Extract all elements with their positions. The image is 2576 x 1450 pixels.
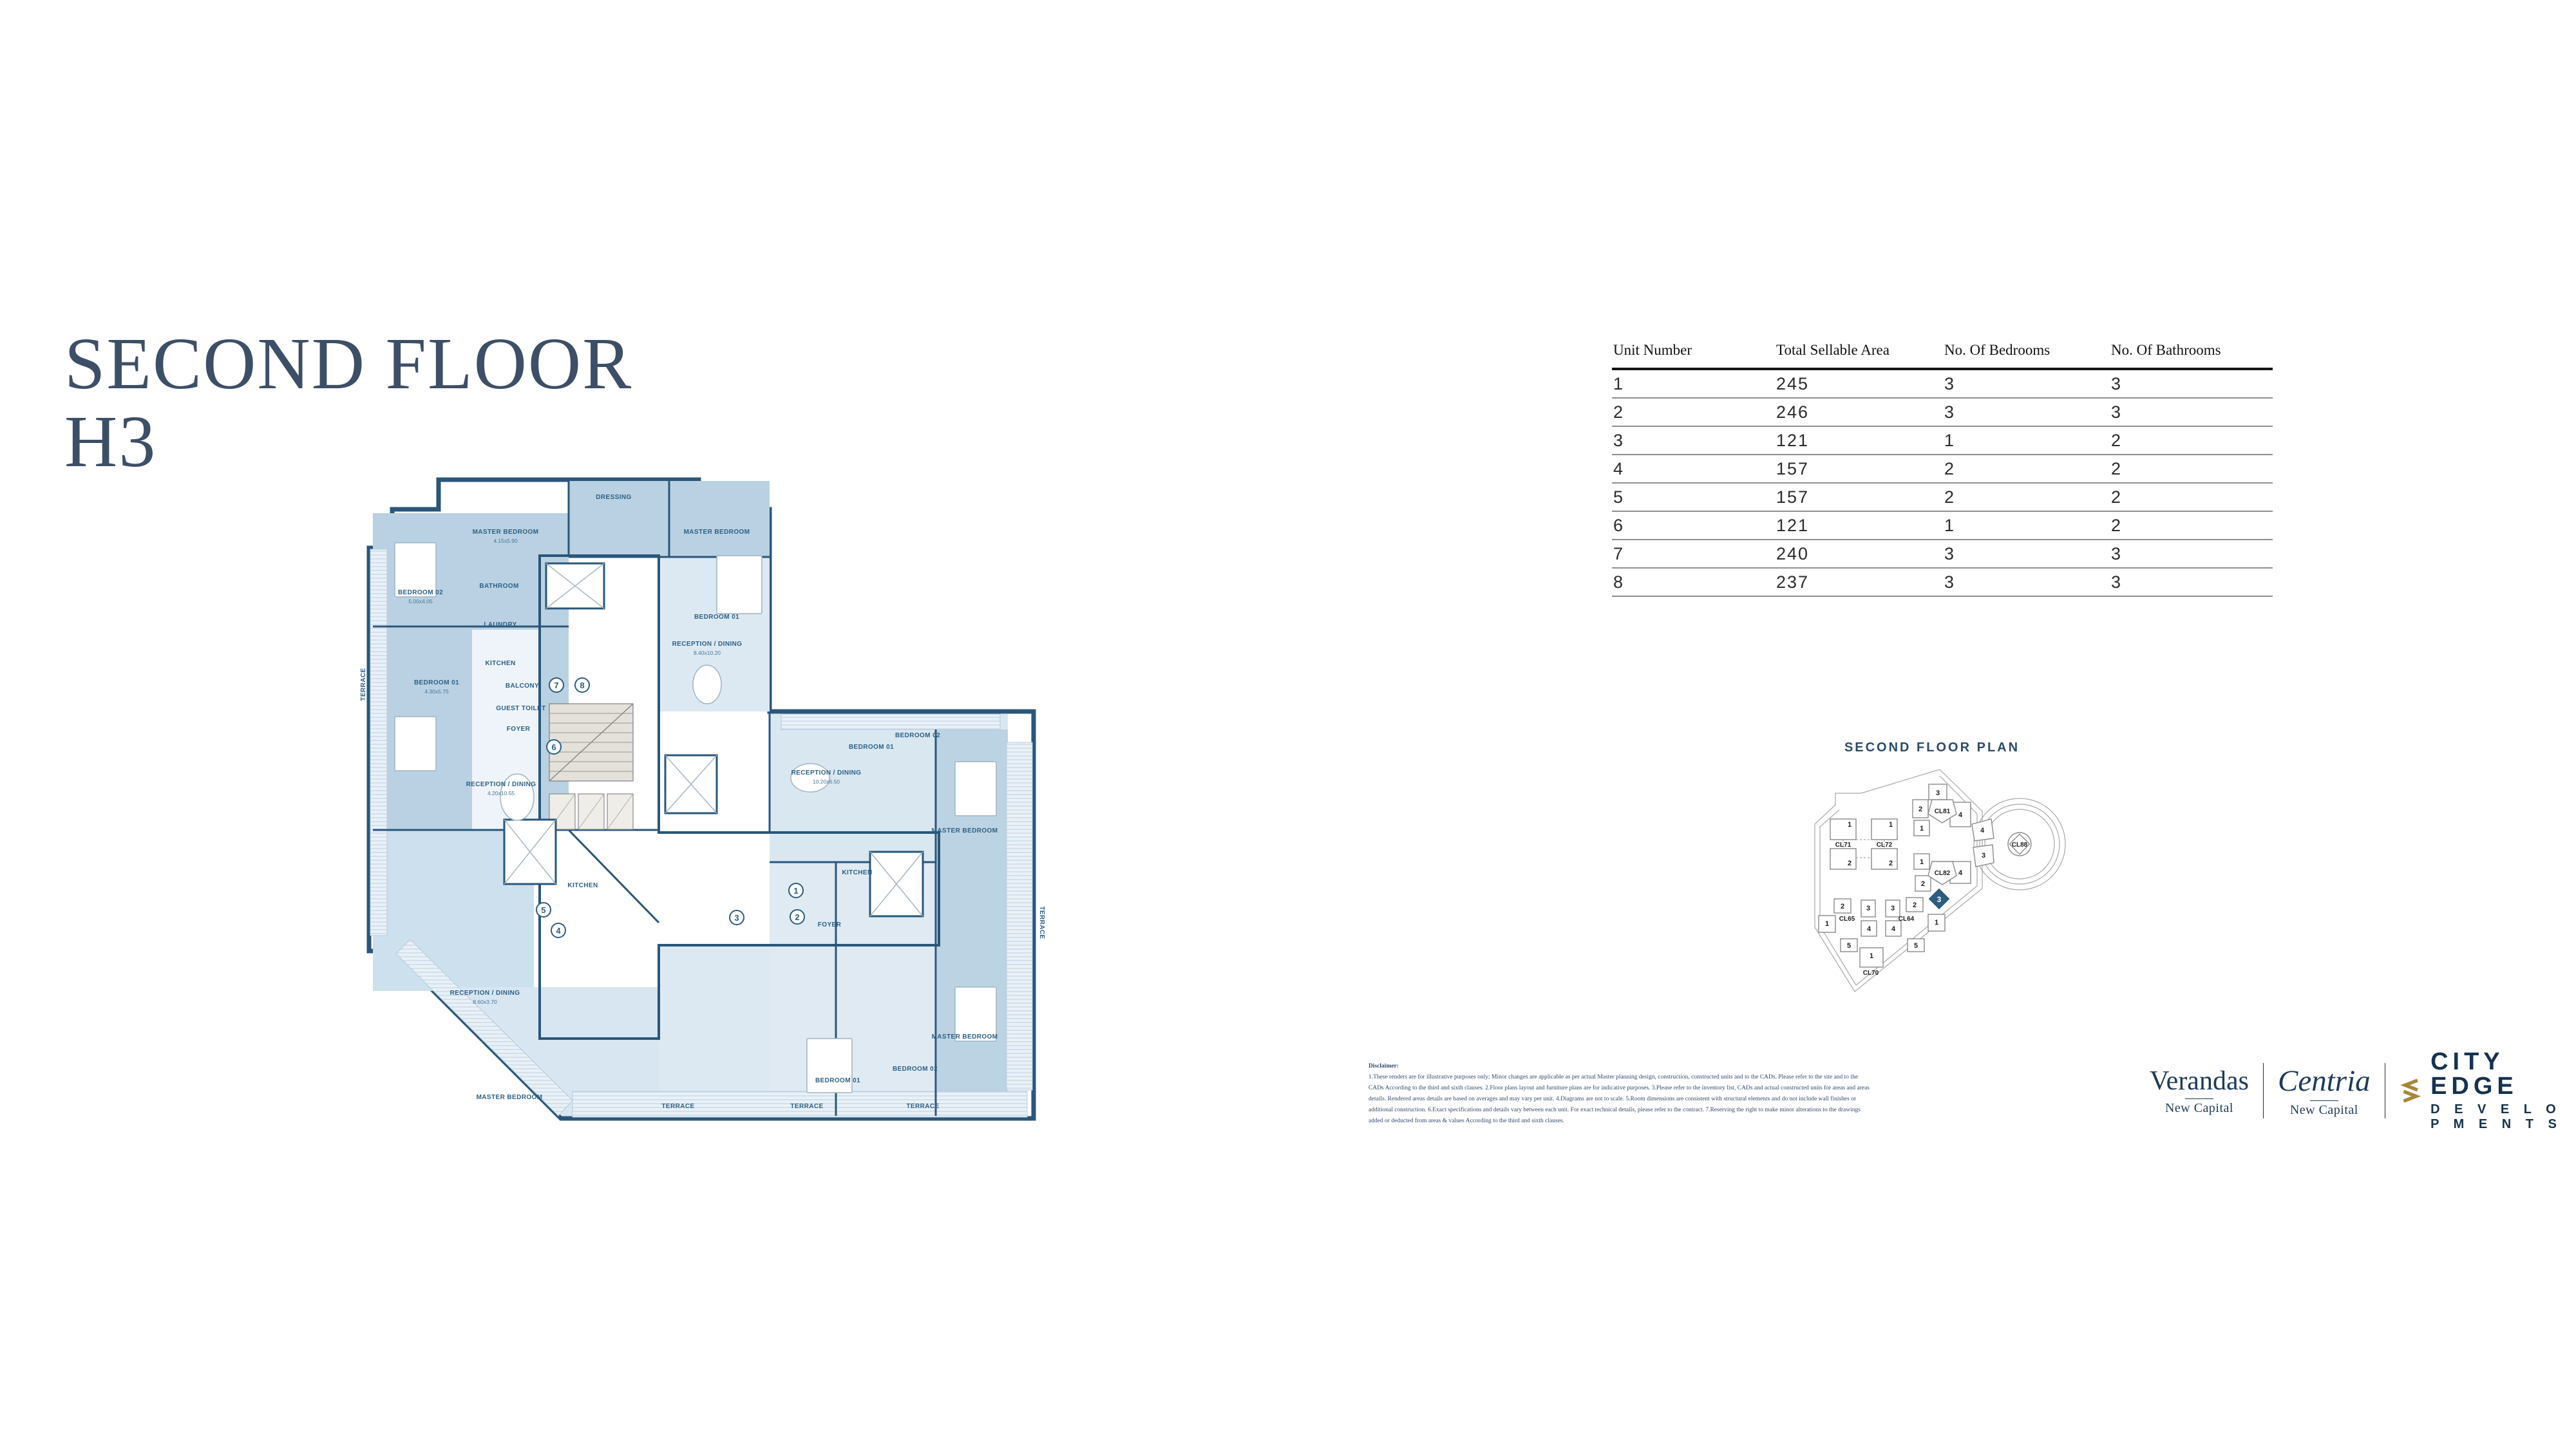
bed xyxy=(955,762,996,816)
unit-marker-label: 2 xyxy=(795,912,799,922)
cell: 1 xyxy=(1612,369,1775,398)
city-edge-ribbon-icon xyxy=(2400,1068,2421,1114)
page-title-line1: SECOND FLOOR xyxy=(64,325,632,403)
cell: 3 xyxy=(2110,540,2273,568)
centria-tagline: New Capital xyxy=(2278,1103,2371,1118)
page-title-line2: H3 xyxy=(64,403,632,481)
room-label: FOYER xyxy=(507,726,531,733)
unit-label: 3 xyxy=(1936,789,1940,797)
unit-marker-7: 7 xyxy=(549,678,563,692)
unit-label: 1 xyxy=(1825,920,1829,928)
room-dim: 4.15x5.90 xyxy=(493,538,518,544)
cell: 3 xyxy=(2110,398,2273,426)
cell: 3 xyxy=(1943,398,2110,426)
cell: 237 xyxy=(1775,568,1943,596)
elevator-icon xyxy=(870,852,923,916)
dining-table xyxy=(791,764,829,792)
room-label: MASTER BEDROOM xyxy=(473,529,539,536)
room-label: GUEST TOILET xyxy=(496,705,545,712)
room-label: BEDROOM 02 xyxy=(895,732,940,739)
unit-marker-5: 5 xyxy=(536,903,551,917)
disclaimer-line: details. Rendered areas details are base… xyxy=(1368,1094,1870,1105)
unit-label: 4 xyxy=(1958,811,1963,819)
cluster-cl70: 1 CL70 xyxy=(1860,948,1883,977)
cell: 3 xyxy=(1612,426,1775,455)
dining-table xyxy=(693,665,721,704)
cell: 3 xyxy=(2110,369,2273,398)
room-label: RECEPTION / DINING xyxy=(791,769,862,777)
cluster-cl81: 3 2 1 4 CL81 xyxy=(1913,784,1971,836)
unit-marker-label: 7 xyxy=(554,681,558,690)
room-label: TERRACE xyxy=(1038,906,1045,939)
room-label: BATHROOM xyxy=(479,583,518,590)
disclaimer-line: CADs According to the third and sixth cl… xyxy=(1368,1083,1870,1094)
bed xyxy=(395,717,436,771)
room-label: KITCHEN xyxy=(567,882,598,889)
unit-label: 4 xyxy=(1958,869,1963,877)
room-dim: 4.20x10.55 xyxy=(488,790,515,796)
table-row: 124533 xyxy=(1612,369,2273,398)
unit-label: 2 xyxy=(1913,901,1917,909)
unit-label: 1 xyxy=(1889,821,1893,829)
room-dim: 4.30x5.75 xyxy=(424,688,449,695)
cluster-cl88: CL88 xyxy=(2008,833,2031,856)
room-dim: 8.60x3.70 xyxy=(473,999,497,1005)
cell: 3 xyxy=(1943,369,2110,398)
cell: 245 xyxy=(1775,369,1943,398)
unit-label: 1 xyxy=(1870,952,1873,960)
unit-table: Unit Number Total Sellable Area No. Of B… xyxy=(1612,342,2273,597)
room-label: FOYER xyxy=(818,921,842,928)
bed xyxy=(807,1039,852,1093)
logo-divider xyxy=(2385,1063,2385,1118)
cluster-label: CL81 xyxy=(1935,808,1951,815)
room-label: BEDROOM 02 xyxy=(893,1066,938,1073)
unit-marker-label: 1 xyxy=(793,886,798,896)
centria-logo: Centria New Capital xyxy=(2278,1064,2371,1118)
unit-label: 2 xyxy=(1889,860,1893,867)
room-label: MASTER BEDROOM xyxy=(477,1094,543,1101)
verandas-tagline: New Capital xyxy=(2150,1101,2249,1116)
page-title: SECOND FLOOR H3 xyxy=(64,325,632,481)
room-dim: 8.40x10.20 xyxy=(694,650,721,656)
room-label: BEDROOM 01 xyxy=(694,614,739,621)
room-label: KITCHEN xyxy=(842,869,872,876)
table-row: 823733 xyxy=(1612,568,2273,596)
table-row: 612112 xyxy=(1612,511,2273,540)
cluster-label: CL82 xyxy=(1935,870,1951,877)
city-edge-logo: CITY EDGE D E V E L O P M E N T S xyxy=(2400,1050,2576,1132)
elevator-icon xyxy=(665,755,717,813)
disclaimer-line: 1.These renders are for illustrative pur… xyxy=(1368,1072,1870,1083)
mini-key-plan: CL88 1 1 2 2 CL71 CL72 3 2 1 4 CL81 1 2 … xyxy=(1810,760,2112,1017)
unit-label: 3 xyxy=(1866,905,1870,912)
col-header-bedrooms: No. Of Bedrooms xyxy=(1943,342,2110,369)
room-label: TERRACE xyxy=(790,1103,823,1110)
unit-marker-2: 2 xyxy=(790,910,804,924)
elevator-bank-icon xyxy=(549,794,633,829)
room-label: TERRACE xyxy=(906,1103,939,1110)
unit-marker-label: 5 xyxy=(541,905,545,915)
room-label: LAUNDRY xyxy=(484,621,516,628)
cell: 2 xyxy=(1612,398,1775,426)
unit-label: 4 xyxy=(1891,925,1896,933)
table-row: 224633 xyxy=(1612,398,2273,426)
cluster-label: CL70 xyxy=(1863,970,1879,977)
unit-marker-4: 4 xyxy=(551,923,565,937)
stairs-icon xyxy=(549,704,633,781)
col-header-unit-number: Unit Number xyxy=(1612,342,1775,369)
cluster-label: CL65 xyxy=(1839,916,1855,923)
brand-logos: Verandas New Capital Centria New Capital… xyxy=(2150,1061,2576,1120)
cell: 246 xyxy=(1775,398,1943,426)
unit-label: 4 xyxy=(1867,925,1871,933)
cell: 3 xyxy=(2110,568,2273,596)
cell: 2 xyxy=(2110,511,2273,540)
unit-label: 1 xyxy=(1848,821,1851,829)
city-edge-text: CITY EDGE D E V E L O P M E N T S xyxy=(2430,1050,2576,1132)
disclaimer-heading: Disclaimer: xyxy=(1368,1061,1870,1072)
table-row: 312112 xyxy=(1612,426,2273,455)
highlighted-unit-label: 3 xyxy=(1937,895,1942,904)
unit-marker-label: 4 xyxy=(556,926,561,936)
unit-marker-label: 6 xyxy=(551,742,556,752)
disclaimer-line: additional construction. 6.Exact specifi… xyxy=(1368,1105,1870,1116)
room-dim: 5.00x4.05 xyxy=(408,598,433,605)
room-label: BEDROOM 01 xyxy=(815,1077,860,1084)
col-header-bathrooms: No. Of Bathrooms xyxy=(2110,342,2273,369)
mini-plan-title: SECOND FLOOR PLAN xyxy=(1810,740,2054,755)
city-edge-name: CITY EDGE xyxy=(2430,1050,2576,1098)
unit-label: 3 xyxy=(1891,905,1895,912)
cell: 5 xyxy=(1612,483,1775,511)
room-label: MASTER BEDROOM xyxy=(932,1033,998,1040)
room-label: TERRACE xyxy=(661,1103,694,1110)
room-label: RECEPTION / DINING xyxy=(672,641,743,648)
room-label: RECEPTION / DINING xyxy=(466,781,536,788)
cluster-label: CL64 xyxy=(1899,916,1915,923)
table-row: 415722 xyxy=(1612,455,2273,483)
cluster-label: CL88 xyxy=(2012,842,2028,849)
unit-label: 1 xyxy=(1920,825,1924,833)
cluster-label: CL71 xyxy=(1835,842,1851,849)
unit-label: 3 xyxy=(1982,852,1985,860)
room-label: BEDROOM 02 xyxy=(398,589,443,596)
verandas-logo: Verandas New Capital xyxy=(2150,1066,2249,1116)
city-edge-subtitle: D E V E L O P M E N T S xyxy=(2430,1102,2576,1132)
unit-marker-label: 8 xyxy=(580,681,584,690)
cell: 2 xyxy=(2110,455,2273,483)
elevator-icon xyxy=(546,563,604,608)
cell: 121 xyxy=(1775,511,1943,540)
table-row: 515722 xyxy=(1612,483,2273,511)
cell: 3 xyxy=(1943,540,2110,568)
room-label: MASTER BEDROOM xyxy=(932,827,998,834)
disclaimer-line: added or deducted from areas & values Ac… xyxy=(1368,1116,1870,1127)
unit-label: 2 xyxy=(1848,860,1851,867)
cell: 2 xyxy=(1943,483,2110,511)
centria-name: Centria xyxy=(2278,1064,2371,1098)
cluster-cl71-cl72: 1 1 2 2 CL71 CL72 xyxy=(1830,819,1897,869)
room-label: TERRACE xyxy=(360,668,367,701)
room-label: BEDROOM 01 xyxy=(849,744,894,751)
cell: 121 xyxy=(1775,426,1943,455)
unit-label: 5 xyxy=(1914,942,1918,950)
unit-marker-label: 3 xyxy=(734,913,739,923)
room-label: MASTER BEDROOM xyxy=(684,529,750,536)
room-label: KITCHEN xyxy=(485,660,515,667)
unit-marker-3: 3 xyxy=(730,910,744,925)
unit-label: 4 xyxy=(1980,827,1985,834)
cell: 240 xyxy=(1775,540,1943,568)
unit-label: 2 xyxy=(1841,903,1844,910)
elevator-icon xyxy=(504,820,556,884)
cluster-cl65: 2 3 1 4 5 CL65 xyxy=(1819,899,1877,952)
disclaimer: Disclaimer: 1.These renders are for illu… xyxy=(1368,1061,1870,1127)
unit-label: 5 xyxy=(1847,942,1851,950)
room-dim: 10.20x6.50 xyxy=(813,778,840,785)
cluster-label: CL72 xyxy=(1877,842,1893,849)
cell: 3 xyxy=(1943,568,2110,596)
verandas-name: Verandas xyxy=(2150,1066,2249,1097)
cell: 157 xyxy=(1775,483,1943,511)
col-header-sellable-area: Total Sellable Area xyxy=(1775,342,1943,369)
unit-label: 1 xyxy=(1935,919,1938,927)
table-header-row: Unit Number Total Sellable Area No. Of B… xyxy=(1612,342,2273,369)
cell: 1 xyxy=(1943,511,2110,540)
cell: 2 xyxy=(1943,455,2110,483)
logo-rule xyxy=(2185,1098,2213,1100)
room-label: BALCONY xyxy=(506,683,539,690)
unit-marker-6: 6 xyxy=(547,740,561,754)
cell: 2 xyxy=(2110,426,2273,455)
wedge-units: 4 3 xyxy=(1972,819,1994,867)
unit-label: 2 xyxy=(1921,880,1925,888)
cell: 157 xyxy=(1775,455,1943,483)
cell: 4 xyxy=(1612,455,1775,483)
room-label: RECEPTION / DINING xyxy=(450,990,520,997)
cell: 8 xyxy=(1612,568,1775,596)
unit-marker-8: 8 xyxy=(575,678,589,692)
table-row: 724033 xyxy=(1612,540,2273,568)
cell: 1 xyxy=(1943,426,2110,455)
cell: 2 xyxy=(2110,483,2273,511)
highlighted-unit: 3 xyxy=(1929,889,1949,909)
unit-marker-1: 1 xyxy=(789,883,803,898)
cell: 6 xyxy=(1612,511,1775,540)
logo-divider xyxy=(2263,1063,2264,1118)
cell: 7 xyxy=(1612,540,1775,568)
unit-label: 1 xyxy=(1920,858,1924,866)
floor-plan-drawing: MASTER BEDROOM 4.15x5.90 MASTER BEDROOM … xyxy=(356,472,1048,1132)
unit-label: 2 xyxy=(1918,805,1922,813)
bed xyxy=(717,556,762,614)
room-label: BEDROOM 01 xyxy=(414,679,459,686)
logo-rule xyxy=(2310,1100,2338,1102)
room-label: DRESSING xyxy=(596,494,631,501)
